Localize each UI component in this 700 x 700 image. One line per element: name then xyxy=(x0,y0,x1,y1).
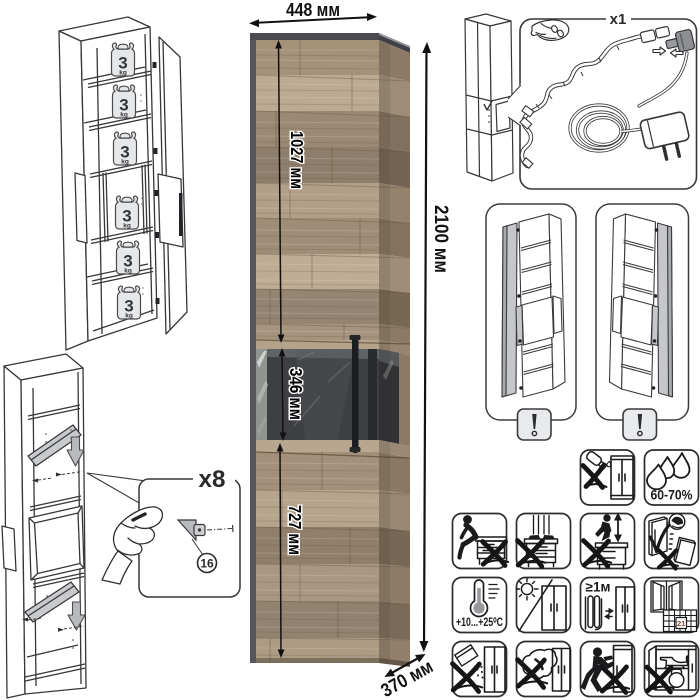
svg-text:kg: kg xyxy=(119,70,127,77)
svg-text:346 мм: 346 мм xyxy=(286,368,306,420)
svg-text:727 мм: 727 мм xyxy=(285,505,305,555)
svg-text:x1: x1 xyxy=(610,11,627,28)
svg-text:+10...+25⁰С: +10...+25⁰С xyxy=(456,616,503,629)
svg-text:448 мм: 448 мм xyxy=(286,0,340,20)
svg-text:1027 мм: 1027 мм xyxy=(287,131,307,189)
svg-text:kg: kg xyxy=(125,313,133,320)
svg-text:2100 мм: 2100 мм xyxy=(430,205,452,273)
svg-text:kg: kg xyxy=(124,268,132,275)
svg-text:kg: kg xyxy=(123,223,131,230)
svg-text:kg: kg xyxy=(120,112,128,119)
svg-text:21: 21 xyxy=(677,619,685,628)
svg-text:kg: kg xyxy=(121,159,129,166)
svg-text:≥1м: ≥1м xyxy=(586,580,611,595)
svg-text:16: 16 xyxy=(200,557,214,571)
svg-text:60-70%: 60-70% xyxy=(651,488,693,503)
svg-text:x8: x8 xyxy=(199,466,226,493)
